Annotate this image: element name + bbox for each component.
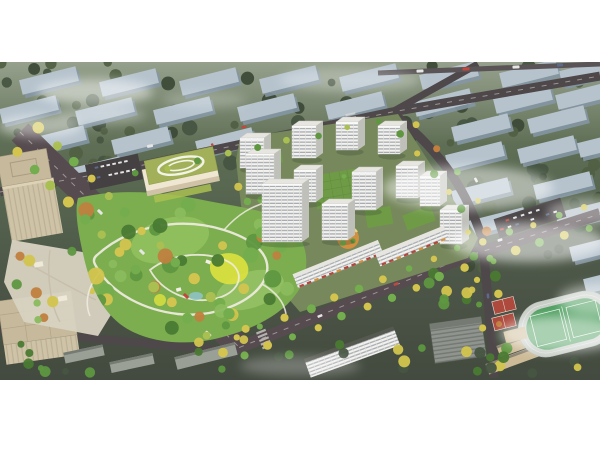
tree <box>574 364 582 372</box>
street-tree <box>218 348 228 358</box>
tree <box>218 241 227 250</box>
playground-yellow <box>154 294 166 306</box>
street-tree <box>376 119 382 125</box>
street-tree <box>474 277 480 283</box>
tree <box>24 255 36 267</box>
street-tree <box>240 351 248 359</box>
tree <box>194 337 204 347</box>
tree <box>15 252 24 261</box>
street-tree <box>413 284 421 292</box>
street-tree <box>494 290 502 298</box>
tree <box>62 368 69 375</box>
tree <box>33 299 40 306</box>
tree <box>218 365 225 372</box>
street-tree <box>63 197 74 208</box>
tree <box>338 348 348 358</box>
pond <box>189 292 203 300</box>
street-tree <box>97 230 105 238</box>
street-tree <box>330 293 338 301</box>
tree <box>25 349 33 357</box>
tree <box>230 121 238 129</box>
street-tree <box>189 273 200 284</box>
tree <box>97 136 104 143</box>
street-tree <box>88 175 96 183</box>
street-tree <box>460 263 468 271</box>
tree <box>31 287 42 298</box>
tree <box>23 358 34 369</box>
street-tree <box>194 157 201 164</box>
street-tree <box>435 272 444 281</box>
fog-cloud <box>450 222 600 262</box>
tree <box>115 270 127 282</box>
tree <box>490 271 501 282</box>
tree <box>272 251 281 260</box>
fog-cloud <box>55 106 145 124</box>
street-tree <box>289 333 296 340</box>
tree <box>223 155 238 170</box>
tree <box>2 77 12 87</box>
street-tree <box>388 294 396 302</box>
tree <box>28 63 40 75</box>
tree <box>335 340 344 349</box>
street-tree <box>164 166 170 172</box>
street-tree <box>170 258 180 268</box>
fog-cloud <box>163 92 247 108</box>
tree <box>182 120 197 135</box>
fog-cloud <box>240 356 360 376</box>
tree <box>195 348 203 356</box>
tree <box>212 254 225 267</box>
tree <box>67 247 76 256</box>
tree <box>439 294 448 303</box>
tree <box>38 365 44 371</box>
street-tree <box>283 137 290 144</box>
street-tree <box>396 130 404 138</box>
street-tree <box>131 265 141 275</box>
street-tree <box>242 325 250 333</box>
street-tree <box>225 150 232 157</box>
tree <box>85 367 95 377</box>
street-tree <box>315 133 322 140</box>
street-tree <box>433 145 440 152</box>
fog-cloud <box>280 68 420 92</box>
tree <box>239 335 248 344</box>
street-tree <box>120 207 130 217</box>
street-tree <box>234 334 240 340</box>
street-tree <box>156 242 164 250</box>
tree <box>161 76 175 90</box>
tree <box>121 225 136 240</box>
vehicle <box>416 69 423 72</box>
street-tree <box>315 324 322 331</box>
street-tree <box>431 256 437 262</box>
tree <box>12 279 22 289</box>
street-tree <box>479 324 486 331</box>
aerial-rendering-figure <box>0 0 600 450</box>
tree <box>222 321 230 329</box>
tree <box>461 287 472 298</box>
tree <box>17 341 24 348</box>
residential-tower <box>260 179 310 248</box>
street-tree <box>476 301 482 307</box>
street-tree <box>182 313 193 324</box>
street-tree <box>379 275 387 283</box>
residential-tower <box>322 199 355 246</box>
street-tree <box>307 304 316 313</box>
tree <box>175 207 186 218</box>
tree <box>47 296 58 307</box>
tree <box>234 183 242 191</box>
street-tree <box>496 321 502 327</box>
vehicle <box>462 67 469 70</box>
tree <box>424 278 435 289</box>
fog-cloud <box>37 79 153 105</box>
street-tree <box>69 157 79 167</box>
street-tree <box>80 214 90 224</box>
street-tree <box>223 308 234 319</box>
tree <box>153 218 168 233</box>
tree <box>418 344 426 352</box>
street-tree <box>414 150 420 156</box>
tree <box>473 367 482 376</box>
tree <box>264 270 281 287</box>
street-tree <box>406 265 412 271</box>
tree <box>280 282 294 296</box>
street-tree <box>148 282 159 293</box>
tree <box>194 311 204 321</box>
street-tree <box>254 144 261 151</box>
tree <box>447 139 455 147</box>
street-tree <box>105 192 113 200</box>
street-tree <box>280 314 288 322</box>
tree <box>165 321 179 335</box>
vehicle <box>487 293 490 298</box>
street-tree <box>12 147 22 157</box>
tree <box>393 344 403 354</box>
street-tree <box>364 303 372 311</box>
tree <box>244 198 251 205</box>
tree <box>241 72 254 85</box>
street-tree <box>30 165 40 175</box>
street-tree <box>263 341 272 350</box>
tree <box>238 283 249 294</box>
street-tree <box>257 324 263 330</box>
tree <box>485 362 496 373</box>
tree <box>243 247 258 262</box>
tree <box>474 347 485 358</box>
residential-tower <box>352 167 383 216</box>
street-tree <box>167 297 177 307</box>
street-tree <box>203 332 211 340</box>
street-tree <box>115 247 125 257</box>
tree <box>486 353 494 361</box>
tree <box>109 260 118 269</box>
tree <box>34 316 41 323</box>
street-tree <box>337 312 345 320</box>
street-tree <box>413 121 420 128</box>
street-tree <box>206 292 216 302</box>
tree <box>461 346 472 357</box>
fog-cloud <box>383 166 553 210</box>
street-tree <box>355 285 363 293</box>
street-tree <box>53 141 62 150</box>
vehicle <box>557 63 563 66</box>
rendering-content <box>0 57 600 380</box>
tree <box>100 127 107 134</box>
street-tree <box>344 124 350 130</box>
tree <box>264 293 276 305</box>
street-tree <box>137 227 145 235</box>
aerial-rendering <box>0 0 600 450</box>
tree <box>498 351 510 363</box>
street-tree <box>45 180 55 190</box>
tree <box>527 368 537 378</box>
street-tree <box>132 170 139 177</box>
vehicle <box>512 65 519 68</box>
tree <box>398 355 410 367</box>
